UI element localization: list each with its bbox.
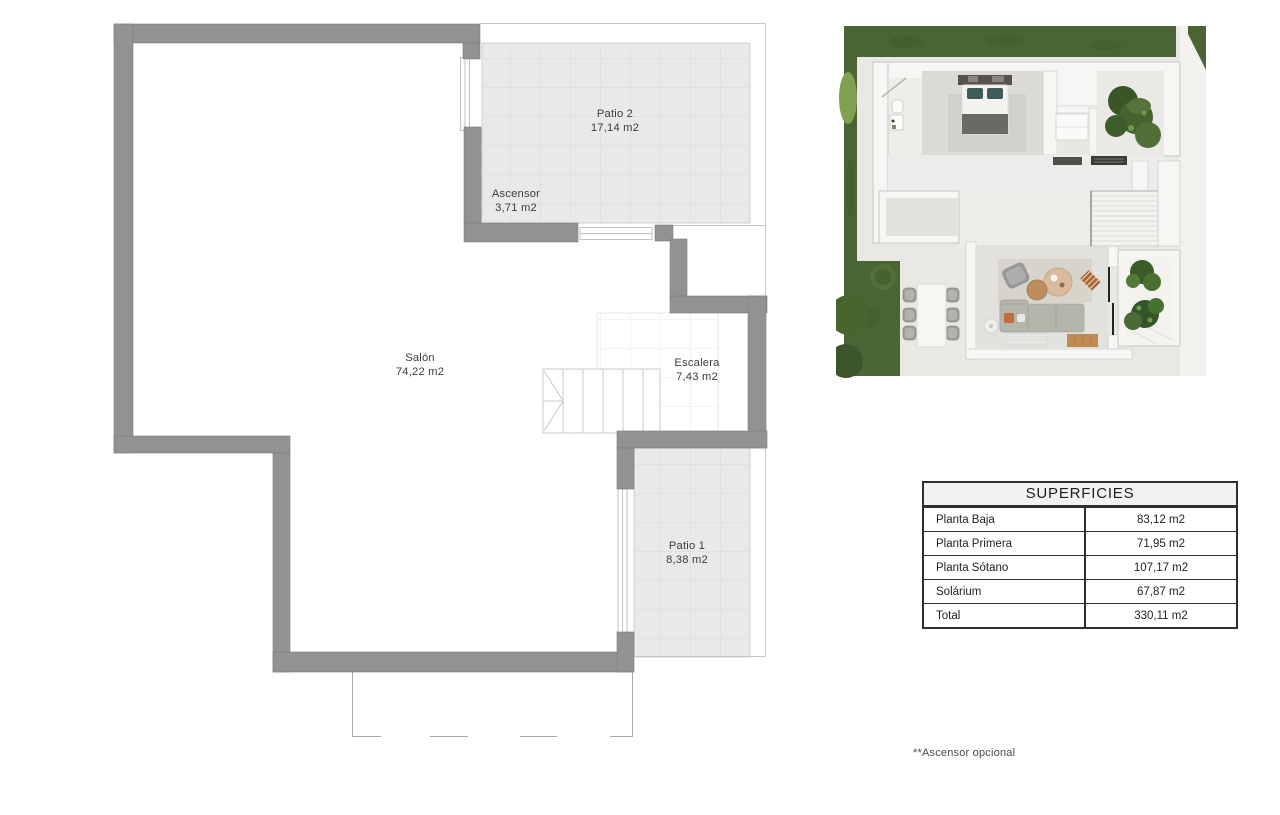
coffee-table-icon	[1044, 268, 1072, 296]
wood-floor-icon	[1067, 334, 1098, 347]
window-horizontal-patio2	[580, 228, 652, 240]
row-value: 67,87 m2	[1086, 580, 1236, 603]
row-value: 330,11 m2	[1086, 604, 1236, 627]
room-label-salon-area: 74,22 m2	[396, 366, 444, 378]
doormat-icon-2	[1091, 156, 1127, 165]
footnote: **Ascensor opcional	[913, 747, 1015, 759]
table-row: Planta Sótano 107,17 m2	[924, 556, 1236, 580]
side-coffee-table-icon	[1027, 280, 1047, 300]
row-label: Planta Primera	[924, 532, 1086, 555]
row-value: 83,12 m2	[1086, 508, 1236, 531]
room-label-patio2-name: Patio 2	[597, 108, 633, 120]
row-label: Planta Sótano	[924, 556, 1086, 579]
render-top-view	[836, 18, 1214, 382]
room-label-patio1-name: Patio 1	[669, 540, 705, 552]
floor-plan: Patio 2 17,14 m2 Ascensor 3,71 m2 Salón …	[0, 0, 800, 815]
window-vertical-patio1	[618, 489, 627, 633]
table-title: SUPERFICIES	[924, 483, 1236, 508]
brochure-page: Patio 2 17,14 m2 Ascensor 3,71 m2 Salón …	[0, 0, 1280, 815]
sofa-icon	[1000, 300, 1084, 332]
table-row: Planta Primera 71,95 m2	[924, 532, 1236, 556]
row-value: 107,17 m2	[1086, 556, 1236, 579]
render-terrace-right	[1180, 26, 1206, 376]
room-label-salon-name: Salón	[405, 352, 435, 364]
room-label-escalera-area: 7,43 m2	[676, 371, 718, 383]
dining-set	[903, 284, 959, 347]
sink-icon	[890, 115, 903, 130]
table-row: Solárium 67,87 m2	[924, 580, 1236, 604]
closet-icon	[1056, 114, 1088, 140]
room-label-escalera-name: Escalera	[674, 357, 720, 369]
room-label-patio1-area: 8,38 m2	[666, 554, 708, 566]
room-label-ascensor-area: 3,71 m2	[495, 202, 537, 214]
row-value: 71,95 m2	[1086, 532, 1236, 555]
row-label: Total	[924, 604, 1086, 627]
row-label: Planta Baja	[924, 508, 1086, 531]
row-label: Solárium	[924, 580, 1086, 603]
staircase-drawing	[543, 369, 660, 433]
window-vertical-top-left	[461, 58, 470, 131]
terrace-outline	[352, 672, 633, 737]
room-label-patio2-area: 17,14 m2	[591, 122, 639, 134]
dining-table-icon	[917, 284, 946, 347]
toilet-icon	[892, 100, 903, 113]
patio1-tiles	[634, 448, 750, 657]
bed-icon	[958, 75, 1012, 134]
room-label-ascensor-name: Ascensor	[492, 188, 540, 200]
runner-icon	[1007, 334, 1047, 344]
table-row: Planta Baja 83,12 m2	[924, 508, 1236, 532]
superficies-table: SUPERFICIES Planta Baja 83,12 m2 Planta …	[922, 481, 1238, 629]
table-row: Total 330,11 m2	[924, 604, 1236, 627]
doormat-icon	[1053, 157, 1082, 165]
